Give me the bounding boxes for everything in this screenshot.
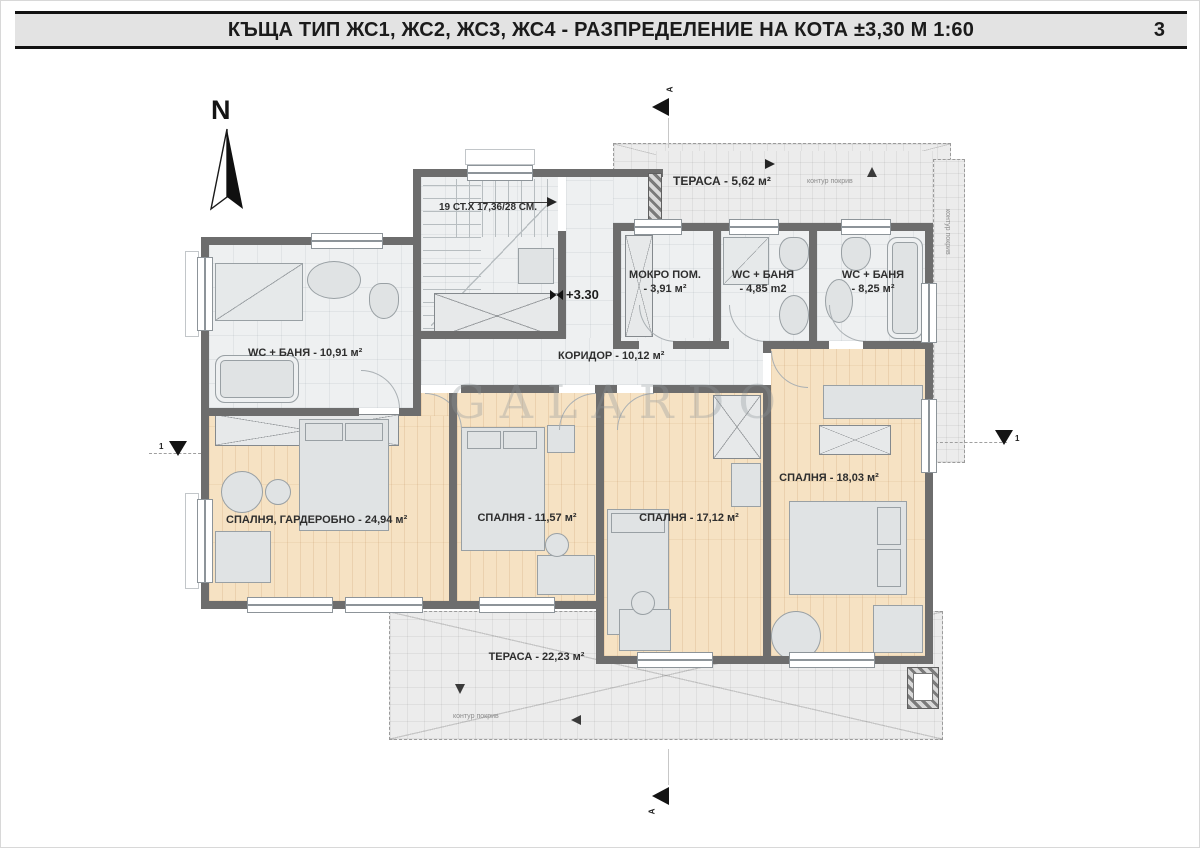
elevation-value: +3.30 xyxy=(566,287,599,302)
window xyxy=(479,597,555,613)
section-marker-a-bottom-label: A xyxy=(647,809,656,815)
drawing-sheet: КЪЩА ТИП ЖС1, ЖС2, ЖС3, ЖС4 - РАЗПРЕДЕЛЕ… xyxy=(0,0,1200,848)
stairs-note: 19 СТ.Х 17,36/28 СМ. xyxy=(439,202,537,213)
window xyxy=(467,165,533,181)
desk xyxy=(619,609,671,651)
room-label-master: СПАЛНЯ, ГАРДЕРОБНО - 24,94 м² xyxy=(226,514,407,526)
room-label-wc2: WC + БАНЯ - 8,25 м² xyxy=(827,269,919,297)
wall-segment xyxy=(558,231,566,339)
sink xyxy=(307,261,361,299)
window xyxy=(197,257,213,331)
pillow xyxy=(877,507,901,545)
toilet xyxy=(841,237,871,271)
roof-contour-label: контур покрив xyxy=(807,178,853,185)
room-label-mokro: МОКРО ПОМ. - 3,91 м² xyxy=(619,269,711,297)
pillow xyxy=(345,423,383,441)
room-name: МОКРО ПОМ. xyxy=(619,269,711,283)
tv-unit xyxy=(731,463,761,507)
wall-segment xyxy=(763,341,771,353)
roof-strip-right xyxy=(933,159,965,463)
room-label-terrace-bottom: ТЕРАСА - 22,23 м² xyxy=(464,651,609,665)
window xyxy=(345,597,423,613)
room-area: - 8,25 м² xyxy=(827,283,919,297)
north-arrow-icon xyxy=(201,125,251,215)
roof-arrow-icon xyxy=(867,167,877,177)
window xyxy=(841,219,891,235)
title-band: КЪЩА ТИП ЖС1, ЖС2, ЖС3, ЖС4 - РАЗПРЕДЕЛЕ… xyxy=(15,11,1187,49)
bathtub xyxy=(215,355,299,403)
axis-marker-left-icon xyxy=(169,441,187,456)
room-label-bedroom2: СПАЛНЯ - 17,12 м² xyxy=(619,512,759,526)
page-number: 3 xyxy=(1154,19,1165,42)
stair-direction-arrow-icon xyxy=(547,197,557,207)
roof-arrow-icon xyxy=(765,159,775,169)
floor-landing-patch xyxy=(613,177,648,223)
window xyxy=(634,219,682,235)
axis-marker-right-label: 1 xyxy=(1015,434,1019,443)
shower xyxy=(215,263,303,321)
room-label-terrace-top: ТЕРАСА - 5,62 м² xyxy=(673,174,771,188)
floor-landing xyxy=(566,177,613,349)
room-label-corridor: КОРИДОР - 10,12 м² xyxy=(558,350,664,362)
sink xyxy=(779,295,809,335)
wall-segment xyxy=(209,408,359,416)
desk xyxy=(537,555,595,595)
wall-segment xyxy=(596,393,604,664)
roof-arrow-icon xyxy=(571,715,581,725)
window-sill xyxy=(465,149,535,165)
pillow xyxy=(503,431,537,449)
roof-contour-label-vertical: контур покрив xyxy=(944,209,951,255)
bench xyxy=(823,385,923,419)
wall-segment xyxy=(763,341,829,349)
desk xyxy=(873,605,923,653)
elevation-marker: +3.30 xyxy=(550,287,599,302)
chair xyxy=(545,533,569,557)
section-marker-a-top-label: A xyxy=(665,87,674,93)
axis-marker-left-label: 1 xyxy=(159,442,163,451)
room-label-bedroom1: СПАЛНЯ - 11,57 м² xyxy=(457,512,597,526)
wall-segment xyxy=(809,231,817,349)
window xyxy=(729,219,779,235)
chair xyxy=(265,479,291,505)
window xyxy=(247,597,333,613)
wall-segment xyxy=(863,341,925,349)
chimney-core xyxy=(913,673,933,701)
sheet-title: КЪЩА ТИП ЖС1, ЖС2, ЖС3, ЖС4 - РАЗПРЕДЕЛЕ… xyxy=(228,19,974,42)
roof-contour-label: контур покрив xyxy=(453,713,499,720)
toilet xyxy=(369,283,399,319)
section-marker-a-bottom-icon xyxy=(652,787,669,805)
room-label-bathroom: WC + БАНЯ - 10,91 м² xyxy=(248,347,362,359)
section-line xyxy=(668,749,669,785)
room-name: WC + БАНЯ xyxy=(717,269,809,283)
window xyxy=(921,283,937,343)
wall-segment xyxy=(413,169,663,177)
watermark: GALARDO xyxy=(449,375,759,429)
room-area: - 3,91 м² xyxy=(619,283,711,297)
pillow xyxy=(467,431,501,449)
window xyxy=(789,652,875,668)
wall-segment xyxy=(621,341,639,349)
section-marker-a-top-icon xyxy=(652,98,669,116)
chair xyxy=(631,591,655,615)
stair-direction-line xyxy=(469,202,547,203)
level-flag-icon xyxy=(550,290,563,300)
window xyxy=(637,652,713,668)
dresser xyxy=(215,531,271,583)
window xyxy=(197,499,213,583)
room-name: WC + БАНЯ xyxy=(827,269,919,283)
roof-arrow-icon xyxy=(455,684,465,694)
section-line xyxy=(668,118,669,148)
north-label: N xyxy=(211,95,231,126)
window xyxy=(921,399,937,473)
axis-marker-right-icon xyxy=(995,430,1013,445)
toilet xyxy=(779,237,809,271)
room-area: - 4,85 m2 xyxy=(717,283,809,297)
wardrobe xyxy=(819,425,891,455)
table xyxy=(221,471,263,513)
wall-segment xyxy=(421,331,566,339)
room-label-wc1: WC + БАНЯ - 4,85 m2 xyxy=(717,269,809,297)
pillow xyxy=(305,423,343,441)
stair-cabinet xyxy=(518,248,554,284)
room-label-bedroom3: СПАЛНЯ - 18,03 м² xyxy=(759,472,899,486)
wall-segment xyxy=(413,245,421,416)
wall-segment xyxy=(413,169,421,245)
window xyxy=(311,233,383,249)
pillow xyxy=(877,549,901,587)
